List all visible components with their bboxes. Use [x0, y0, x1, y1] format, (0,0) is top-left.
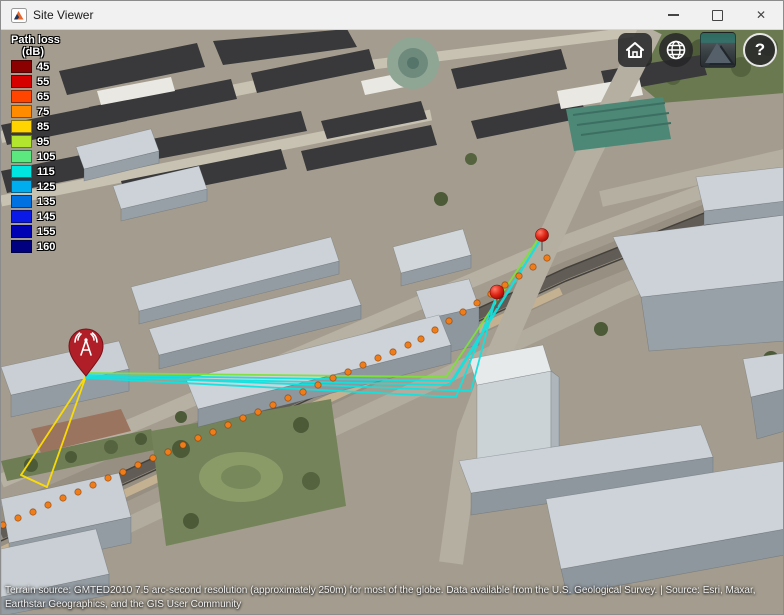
receiver-sphere[interactable] [536, 229, 549, 242]
route-dot [345, 369, 351, 375]
route-dot [315, 382, 321, 388]
minimize-icon [668, 14, 679, 16]
receiver-sphere[interactable] [490, 285, 504, 299]
legend-value: 160 [37, 241, 55, 253]
globe-view-button[interactable] [659, 33, 693, 67]
legend-rows: 455565758595105115125135145155160 [11, 60, 77, 253]
legend-swatch [11, 165, 32, 178]
antenna-dot [84, 338, 87, 341]
route-dot [150, 455, 156, 461]
route-dot [270, 402, 276, 408]
route-dot [530, 264, 536, 270]
route-dot [120, 469, 126, 475]
path-loss-legend: Path loss (dB) 4555657585951051151251351… [11, 34, 77, 253]
attribution-line-2: Earthstar Geographics, and the GIS User … [5, 598, 756, 612]
help-button[interactable]: ? [743, 33, 777, 67]
close-icon: ✕ [756, 8, 766, 22]
route-dot [105, 475, 111, 481]
legend-swatch [11, 75, 32, 88]
route-dot [240, 415, 246, 421]
route-dot [390, 349, 396, 355]
window-title: Site Viewer [33, 8, 93, 22]
route-dot [330, 375, 336, 381]
route-dot [30, 509, 36, 515]
attribution-line-1: Terrain source: GMTED2010 7.5 arc-second… [5, 584, 756, 598]
globe-icon [665, 39, 687, 61]
route-dot [432, 327, 438, 333]
legend-value: 115 [37, 166, 55, 178]
legend-entry: 115 [11, 165, 77, 178]
legend-swatch [11, 135, 32, 148]
legend-swatch [11, 240, 32, 253]
legend-swatch [11, 90, 32, 103]
legend-entry: 95 [11, 135, 77, 148]
route-dot [180, 442, 186, 448]
scene-canvas [1, 29, 783, 614]
legend-entry: 145 [11, 210, 77, 223]
legend-value: 85 [37, 121, 49, 133]
route-dot [460, 309, 466, 315]
route-dot [210, 429, 216, 435]
home-view-button[interactable] [618, 33, 652, 67]
legend-value: 105 [37, 151, 55, 163]
legend-value: 45 [37, 61, 49, 73]
route-dot [375, 355, 381, 361]
legend-entry: 125 [11, 180, 77, 193]
legend-swatch [11, 210, 32, 223]
legend-entry: 55 [11, 75, 77, 88]
route-dot [165, 449, 171, 455]
legend-title: Path loss [11, 34, 77, 46]
site-viewer-window: Site Viewer ✕ [0, 0, 784, 615]
route-dot [502, 282, 508, 288]
help-icon: ? [755, 40, 765, 60]
route-dot [225, 422, 231, 428]
home-icon [625, 40, 645, 60]
route-dot [90, 482, 96, 488]
map-viewport[interactable]: Path loss (dB) 4555657585951051151251351… [1, 29, 783, 614]
legend-value: 125 [37, 181, 55, 193]
legend-value: 145 [37, 211, 55, 223]
legend-swatch [11, 105, 32, 118]
route-dot [300, 389, 306, 395]
route-dot [195, 435, 201, 441]
map-attribution: Terrain source: GMTED2010 7.5 arc-second… [5, 584, 756, 612]
route-dot [135, 462, 141, 468]
basemap-thumbnail-icon [705, 43, 731, 63]
minimize-button[interactable] [651, 1, 695, 29]
map-toolbar: ? [618, 32, 777, 68]
legend-unit: (dB) [11, 46, 55, 58]
legend-swatch [11, 120, 32, 133]
legend-entry: 85 [11, 120, 77, 133]
title-bar[interactable]: Site Viewer ✕ [1, 1, 783, 30]
legend-value: 65 [37, 91, 49, 103]
legend-value: 135 [37, 196, 55, 208]
route-dot [360, 362, 366, 368]
matlab-app-icon [11, 8, 27, 23]
legend-swatch [11, 60, 32, 73]
route-dot [1, 522, 6, 528]
maximize-button[interactable] [695, 1, 739, 29]
route-dot [75, 489, 81, 495]
legend-entry: 135 [11, 195, 77, 208]
maximize-icon [712, 10, 723, 21]
close-button[interactable]: ✕ [739, 1, 783, 29]
route-dot [446, 318, 452, 324]
legend-entry: 45 [11, 60, 77, 73]
legend-entry: 65 [11, 90, 77, 103]
route-dot [544, 255, 550, 261]
legend-value: 75 [37, 106, 49, 118]
legend-entry: 160 [11, 240, 77, 253]
route-dot [60, 495, 66, 501]
route-dot [45, 502, 51, 508]
route-dot [285, 395, 291, 401]
legend-value: 155 [37, 226, 55, 238]
legend-entry: 75 [11, 105, 77, 118]
route-dot [516, 273, 522, 279]
legend-value: 55 [37, 76, 49, 88]
legend-swatch [11, 225, 32, 238]
route-dot [474, 300, 480, 306]
basemap-picker-button[interactable] [700, 32, 736, 68]
legend-entry: 105 [11, 150, 77, 163]
route-dot [255, 409, 261, 415]
legend-entry: 155 [11, 225, 77, 238]
legend-swatch [11, 180, 32, 193]
route-dot [405, 342, 411, 348]
legend-swatch [11, 150, 32, 163]
legend-swatch [11, 195, 32, 208]
route-dot [418, 336, 424, 342]
legend-value: 95 [37, 136, 49, 148]
route-dot [15, 515, 21, 521]
